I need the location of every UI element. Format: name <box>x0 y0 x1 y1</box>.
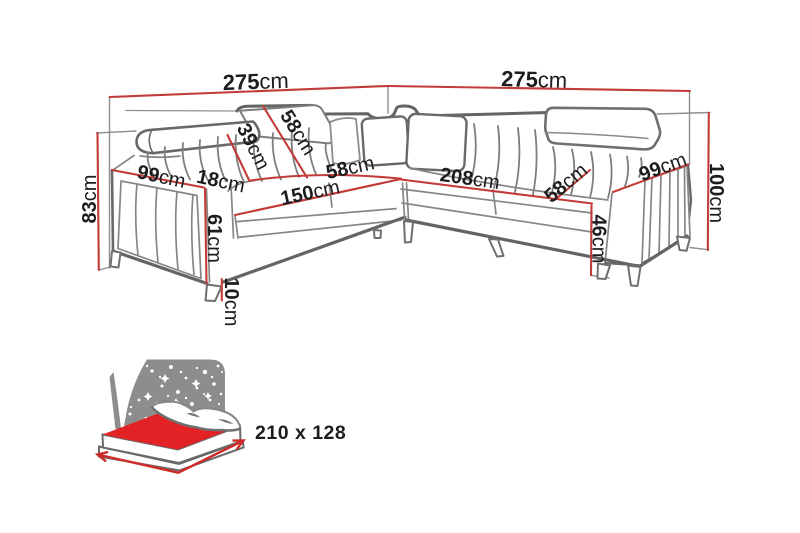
svg-text:275cm: 275cm <box>222 68 289 95</box>
svg-text:10cm: 10cm <box>220 278 242 327</box>
svg-text:83cm: 83cm <box>79 175 101 224</box>
svg-text:100cm: 100cm <box>705 163 727 223</box>
svg-text:275cm: 275cm <box>501 66 568 93</box>
svg-text:210 x 128: 210 x 128 <box>255 422 346 444</box>
svg-text:46cm: 46cm <box>588 215 610 264</box>
svg-text:61cm: 61cm <box>203 214 225 263</box>
